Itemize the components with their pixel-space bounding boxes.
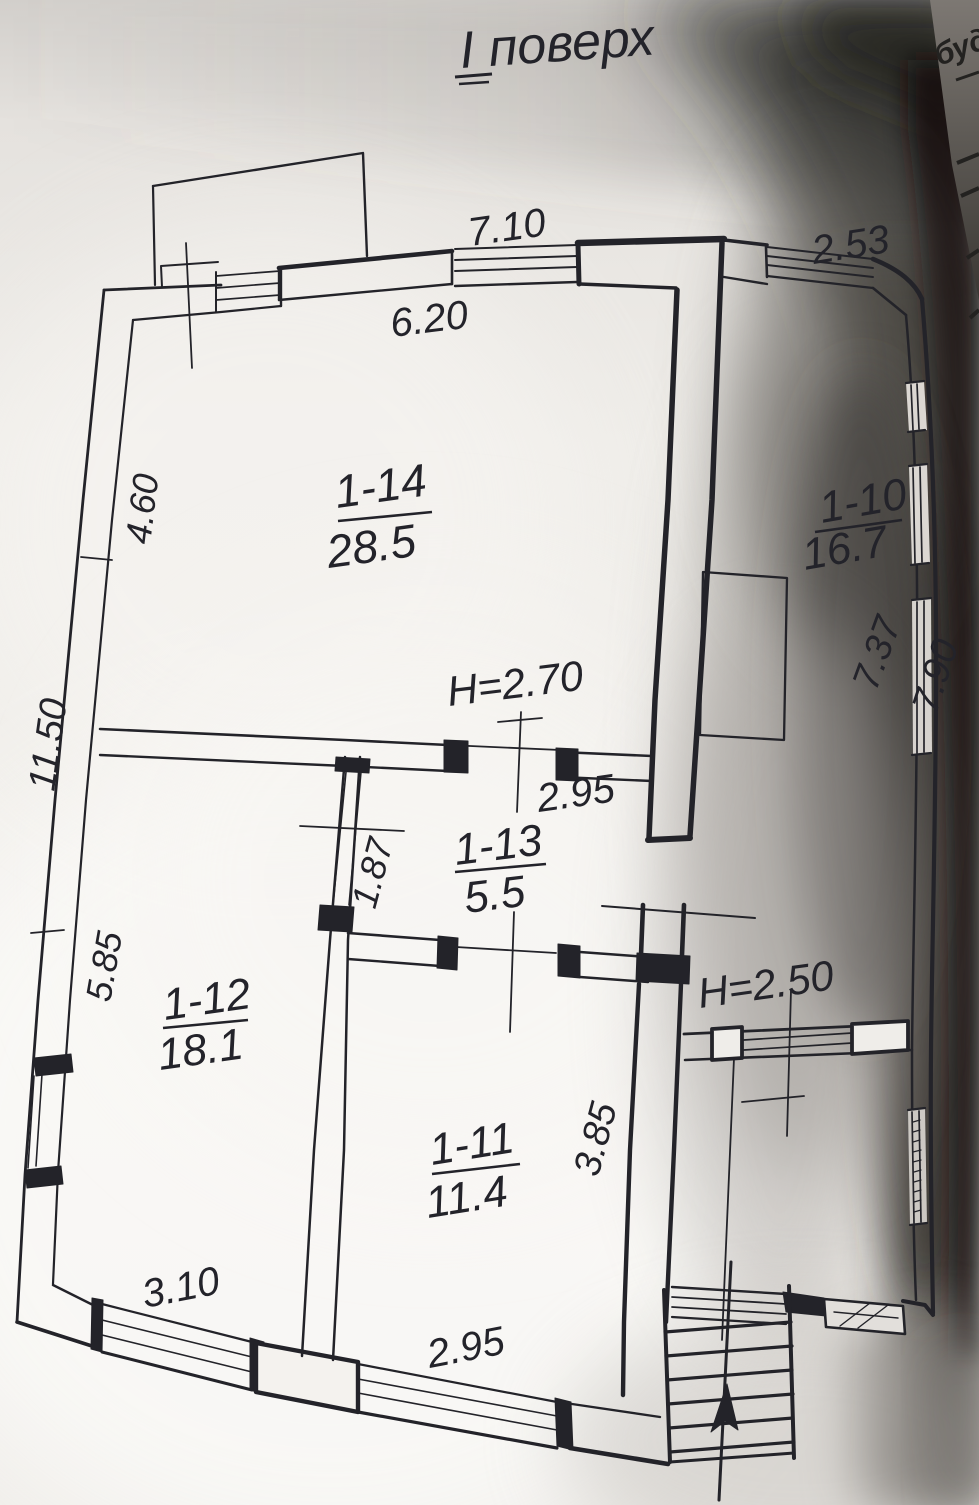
- svg-text:6.20: 6.20: [388, 293, 471, 346]
- svg-text:4.60: 4.60: [117, 471, 166, 546]
- svg-text:5.5: 5.5: [461, 867, 528, 923]
